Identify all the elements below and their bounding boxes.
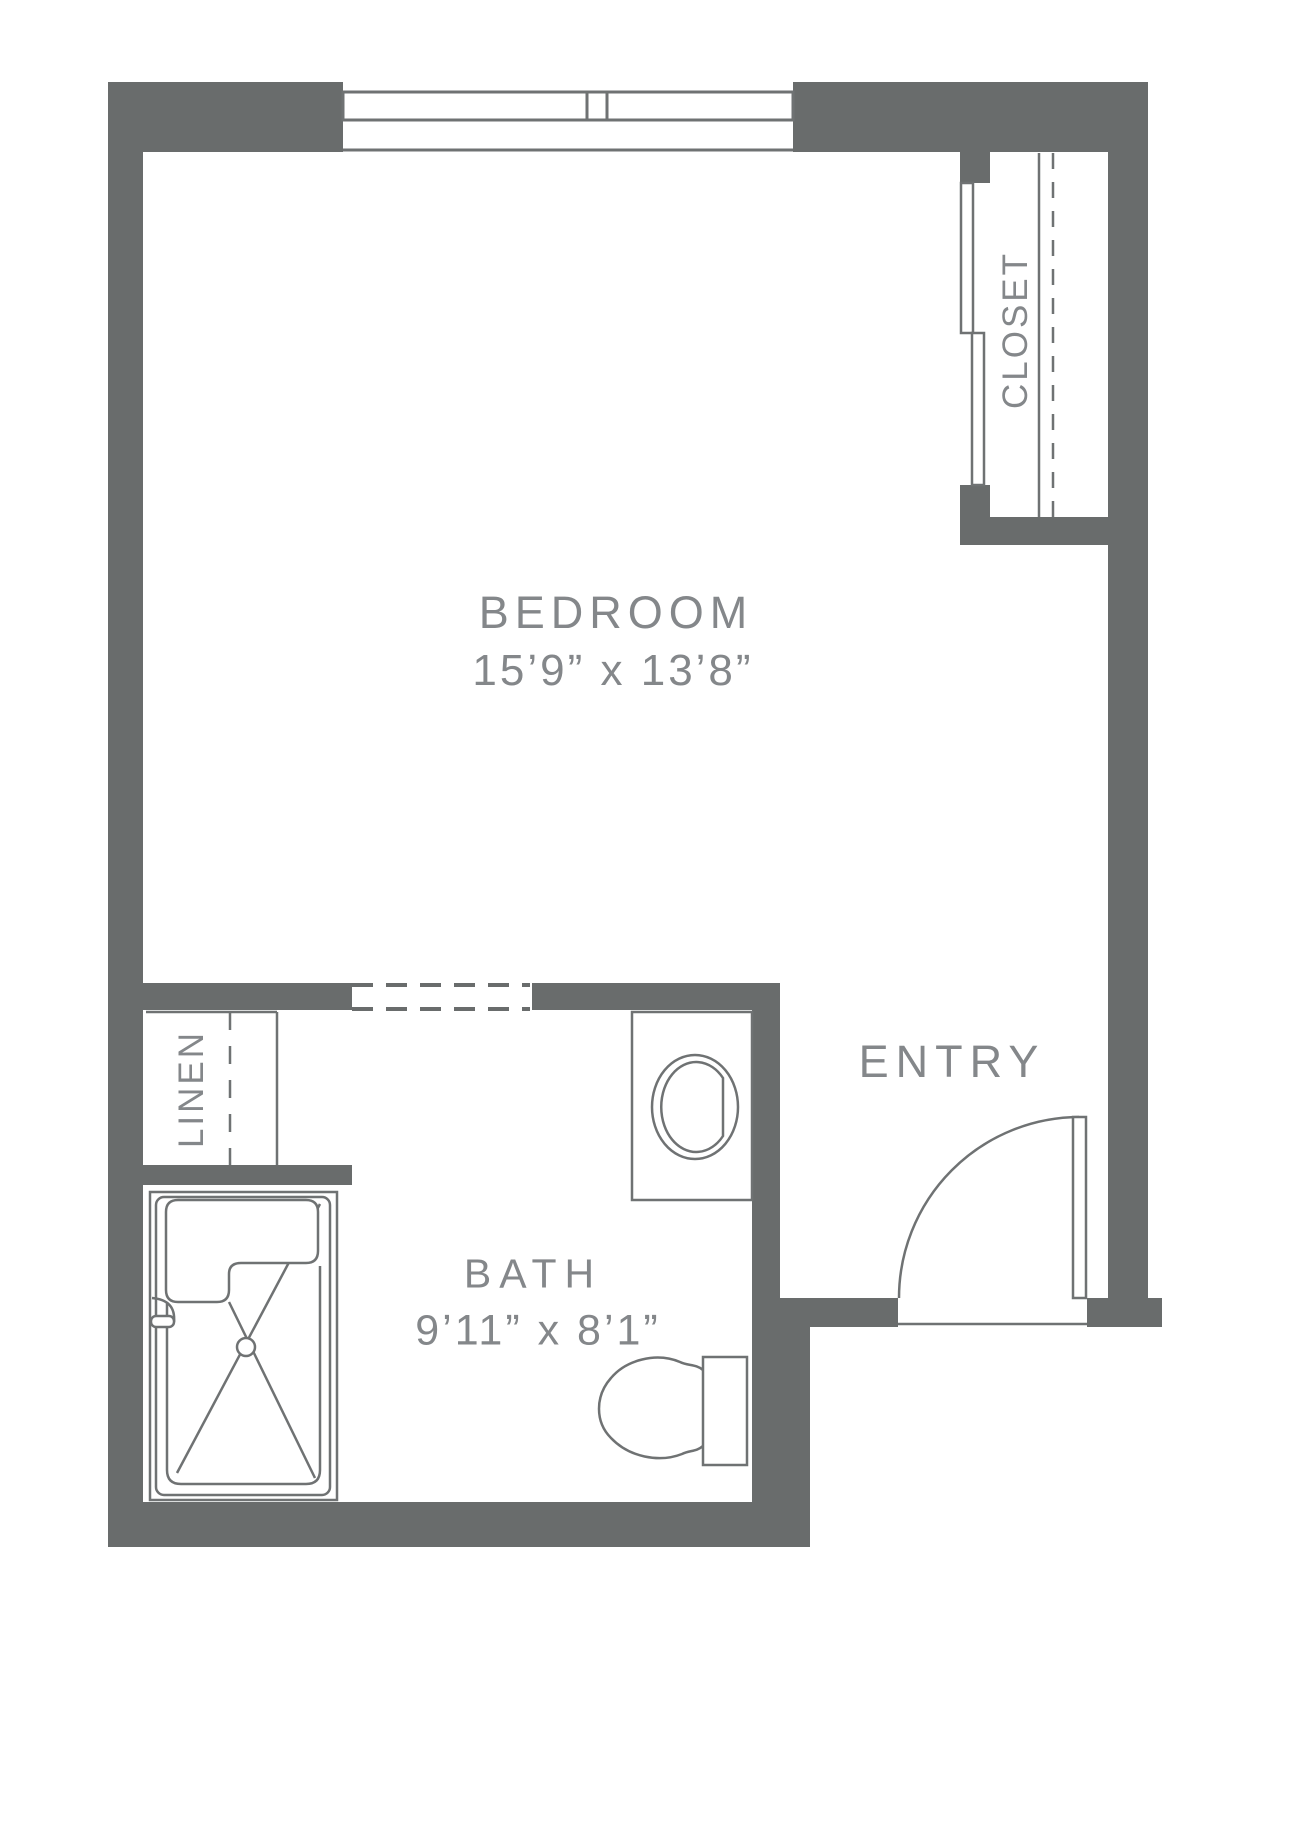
wall-top-left (108, 82, 343, 152)
entry-label: ENTRY (859, 1036, 1046, 1088)
shower-handle (151, 1316, 174, 1327)
closet-bypass-door-2 (972, 333, 984, 485)
shower-drain (237, 1338, 255, 1356)
vanity-counter (632, 1012, 752, 1200)
entry-door-swing-arc (899, 1117, 1079, 1298)
entry-door-leaf (1073, 1117, 1086, 1298)
wall-bath-corner (752, 1327, 810, 1505)
shower (150, 1192, 337, 1500)
toilet (599, 1357, 747, 1465)
window (343, 92, 793, 150)
bath-dimensions: 9’11” x 8’1” (415, 1307, 661, 1356)
linen-label: LINEN (172, 1030, 212, 1148)
shower-slope-line (229, 1302, 315, 1478)
vanity-sink (632, 1012, 752, 1200)
toilet-tank (703, 1357, 747, 1465)
closet-stub-top (960, 152, 990, 183)
wall-divider-left (143, 983, 352, 1010)
floor-plan-drawing (0, 0, 1308, 1848)
wall-closet-bottom (990, 517, 1148, 545)
wall-divider-right (532, 983, 780, 1010)
wall-entry-jamb-right (1087, 1298, 1162, 1327)
bedroom-dimensions: 15’9” x 13’8” (472, 646, 753, 696)
toilet-bowl (599, 1358, 703, 1458)
bedroom-bath-opening (352, 985, 530, 1009)
wall-entry-jamb-left (752, 1298, 898, 1327)
shower-bench (166, 1200, 318, 1302)
floor-plan: BEDROOM 15’9” x 13’8” ENTRY BATH 9’11” x… (0, 0, 1308, 1848)
wall-bath-bottom (108, 1502, 810, 1547)
bedroom-label: BEDROOM (479, 587, 754, 639)
closet-bypass-door-1 (961, 183, 973, 333)
wall-linen-bottom (108, 1165, 352, 1185)
wall-top-right (793, 82, 1148, 152)
window-frame (343, 92, 793, 120)
bath-label: BATH (464, 1251, 602, 1298)
entry-door (898, 1117, 1087, 1324)
wall-left (108, 82, 143, 1547)
wall-bath-entry (752, 1010, 780, 1300)
wall-right (1108, 152, 1148, 1298)
closet-label: CLOSET (996, 251, 1036, 409)
closet-stub-bottom (960, 485, 990, 545)
